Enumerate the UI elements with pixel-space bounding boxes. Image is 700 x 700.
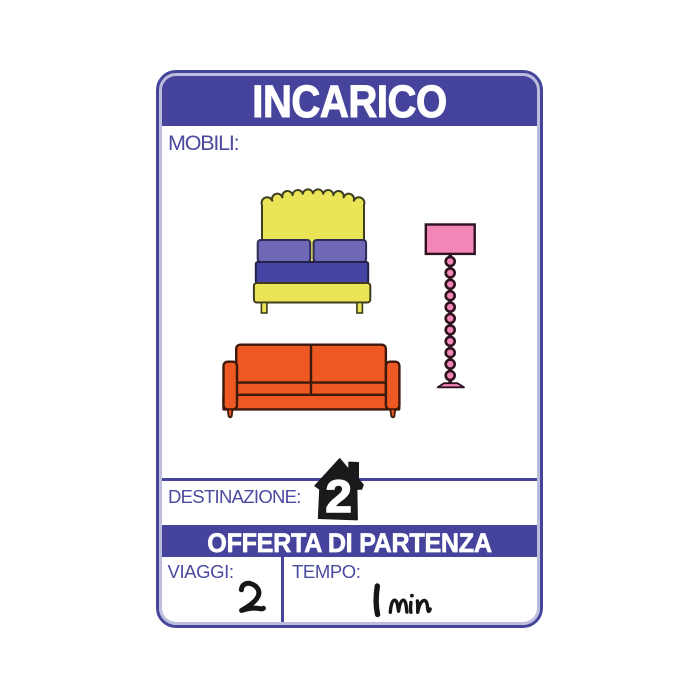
svg-text:2: 2 bbox=[325, 471, 352, 521]
